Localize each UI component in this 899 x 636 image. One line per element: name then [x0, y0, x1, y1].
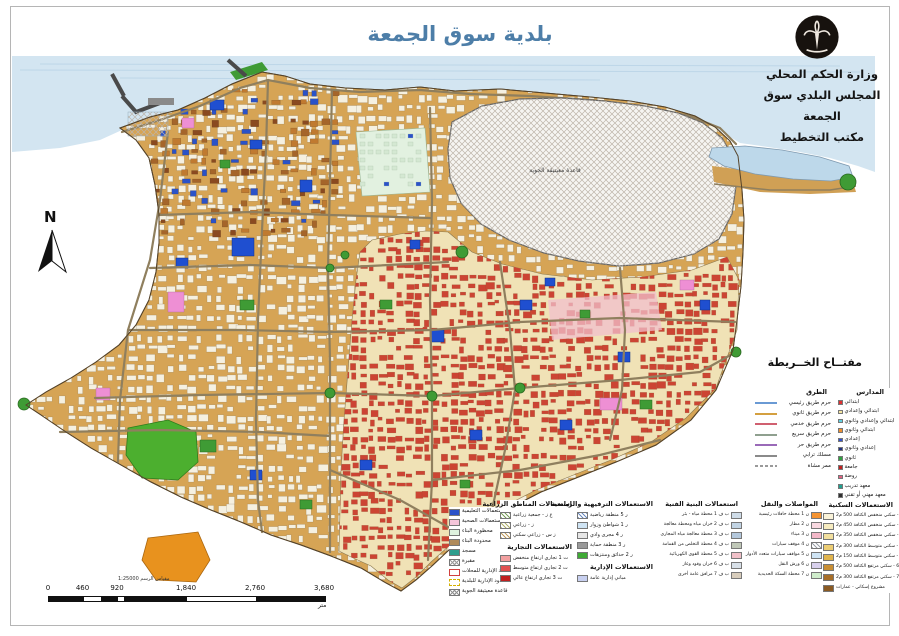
legend-item: حرم طريق حر: [755, 440, 831, 451]
page-title: بلدية سوق الجمعة: [310, 22, 610, 46]
legend-item-label: حرم طريق رئيسي: [779, 401, 831, 407]
legend-swatch: [731, 522, 742, 529]
legend-item: معهد تدريب: [838, 482, 894, 491]
legend-swatch: [823, 554, 834, 561]
legend-swatch: [449, 579, 460, 586]
legend-swatch: [500, 575, 511, 582]
legend-item: ر 2 حدائق ومنتزهات: [577, 550, 657, 560]
scalebar-unit: متر: [318, 602, 326, 609]
legend-item-label: م ر 6 - سكني مرتفع الكثافة 500 م2: [836, 565, 899, 570]
legend-item-label: إعدادي: [845, 437, 860, 442]
legend-item: حرم طريق رئيسي: [755, 398, 831, 409]
scalebar-tick-labels: 04609201,8402,7603,680: [48, 584, 324, 593]
legend-item: إعدادي: [838, 435, 894, 444]
legend-item: ت 3 تجاري ارتفاع عالي: [500, 573, 576, 583]
legend-item: ز - زراعي: [500, 520, 576, 530]
legend-swatch: [838, 410, 843, 415]
legend-item: ب ف 7 مرافق عامة أخرى: [658, 570, 742, 580]
legend-item-label: إعدادي وثانوي: [845, 446, 876, 451]
legend-item-label: ابتدائي وثانوي: [845, 428, 875, 433]
legend-item-label: ب ف 7 مرافق عامة أخرى: [678, 573, 729, 578]
legend-item: م ر 5 - سكني متوسط الكثافة 150 م2: [823, 552, 897, 562]
legend-swatch: [755, 444, 777, 446]
schools-legend-header: المدارس: [838, 388, 894, 396]
roads-legend-items: حرم طريق رئيسيحرم طريق ثانويحرم طريق خدم…: [755, 398, 831, 472]
roads-legend-header: الطرق: [755, 388, 831, 396]
legend-swatch: [823, 574, 834, 581]
legend-swatch: [577, 542, 588, 549]
legend-swatch: [731, 562, 742, 569]
legend-item: حرم طريق خدمي: [755, 419, 831, 430]
legend-column-residential: الاستعمالات السكنية م ر 1 - سكني منخفض ا…: [823, 501, 897, 593]
legend-item-label: م ر 7 - سكني مرتفع الكثافة 300 م2: [836, 576, 899, 581]
legend-item-label: حرم طريق ثانوي: [779, 411, 831, 417]
legend-item: ب ف 3 محطة معالجة مياه المجاري: [658, 530, 742, 540]
legend-item: ب ف 2 خزان مياه ومحطة معالجة: [658, 520, 742, 530]
legend-item-label: محظورة البناء: [462, 529, 493, 534]
residential-items: م ر 1 - سكني منخفض الكثافة 500 م2م ر 2 -…: [823, 511, 897, 593]
residential-header: الاستعمالات السكنية: [823, 501, 897, 509]
legend-item: جامعة: [838, 463, 894, 472]
legend-item-label: ممر مشاة: [779, 464, 831, 470]
legend-item: ن 4 موقف سيارات: [743, 540, 822, 550]
legend-swatch: [500, 555, 511, 562]
legend-swatch: [838, 493, 843, 498]
legend-item: ب ف 1 محطة مياه - بئر: [658, 510, 742, 520]
legend-column-commercial: الاستعمالات التجارية ت 1 تجاري ارتفاع من…: [500, 543, 576, 583]
legend-item-label: ب ف 6 خزان وقود وغاز: [683, 563, 729, 568]
legend-item-label: ر 5 منطقة رياضية: [590, 513, 628, 518]
legend-swatch: [755, 455, 777, 457]
legend-item-label: مسجد: [462, 549, 476, 554]
legend-item-label: ت 3 تجاري ارتفاع عالي: [513, 576, 562, 581]
legend-item-label: ب ف 5 محطة القوى الكهربائية: [669, 553, 729, 558]
legend-item: م ر 7 - سكني مرتفع الكثافة 300 م2: [823, 573, 897, 583]
legend-item-label: م ر 2 - سكني منخفض الكثافة 450 م2: [836, 524, 899, 529]
legend-item-label: ب ف 4 محطة التخلص من القمامة: [662, 543, 729, 548]
legend-item: قاعدة معيتيقة الجوية: [449, 587, 511, 597]
legend-swatch: [838, 400, 843, 405]
legend-swatch: [577, 552, 588, 559]
legend-item: ر 5 منطقة رياضية: [577, 510, 657, 520]
legend-item-label: ن 3 ميناء: [791, 533, 809, 538]
legend-item: ع ز - جمعية زراعية: [500, 510, 576, 520]
legend-swatch: [823, 585, 834, 592]
legend-swatch: [811, 562, 822, 569]
legend-swatch: [577, 512, 588, 519]
legend-item: م ر 2 - سكني منخفض الكثافة 450 م2: [823, 521, 897, 531]
legend-item-label: ر 2 حدائق ومنتزهات: [590, 553, 633, 558]
infrastructure-header: استعمالات البنية الفنية: [658, 500, 742, 508]
legend-swatch: [449, 539, 460, 546]
legend-item: م ر 3 - سكني منخفض الكثافة 350 م2: [823, 532, 897, 542]
legend-item: مسلك ترابي: [755, 451, 831, 462]
legend-item-label: ر 3 منطقة حماية: [590, 543, 625, 548]
legend-item-label: حرم طريق حر: [779, 443, 831, 449]
legend-swatch: [838, 438, 843, 443]
legend-item-label: ر 1 شواطئ وزوار: [590, 523, 628, 528]
legend-item-label: م ر 5 - سكني متوسط الكثافة 150 م2: [836, 555, 899, 560]
legend-swatch: [811, 512, 822, 519]
legend-swatch: [838, 419, 843, 424]
org-line-ministry: وزارة الحكم المحلي: [755, 64, 889, 85]
legend-item: ب ف 6 خزان وقود وغاز: [658, 560, 742, 570]
transport-header: المواصلات والنقل: [743, 500, 822, 508]
legend-item: ثانوي: [838, 454, 894, 463]
legend-swatch: [755, 423, 777, 425]
org-line-council: المجلس البلدي سوق الجمعة: [755, 85, 889, 127]
legend-item-label: م ر 4 - سكني متوسط الكثافة 300 م2: [836, 545, 899, 550]
legend-item-label: ت 2 تجاري ارتفاع متوسط: [513, 566, 568, 571]
legend-item-label: ابتدائي وإعدادي وثانوي: [845, 419, 895, 424]
recreation-header: الاستعمالات الترفيهية والرياضية: [577, 500, 657, 508]
legend-swatch: [838, 465, 843, 470]
legend-item-label: مقبرة: [462, 559, 475, 564]
legend-swatch: [755, 434, 777, 436]
legend-swatch: [838, 456, 843, 461]
legend-swatch: [577, 532, 588, 539]
legend-swatch: [811, 572, 822, 579]
legend-item: ت 2 تجاري ارتفاع متوسط: [500, 563, 576, 573]
legend-item-label: جامعة: [845, 465, 858, 470]
administrative-header: الاستعمالات الإدارية: [577, 563, 657, 571]
legend-column-administrative: الاستعمالات الإدارية مباني إدارية عامة: [577, 563, 657, 583]
scalebar-tick: 1,840: [176, 584, 196, 592]
legend-swatch: [731, 532, 742, 539]
legend-item: م ر 6 - سكني مرتفع الكثافة 500 م2: [823, 562, 897, 572]
legend-item-label: م ر 1 - سكني منخفض الكثافة 500 م2: [836, 514, 899, 519]
legend-swatch: [838, 484, 843, 489]
legend-swatch: [500, 532, 511, 539]
legend-item: ن 5 مواقف سيارات متعدد الأدوار: [743, 550, 822, 560]
legend-item-label: ثانوي: [845, 456, 856, 461]
commercial-items: ت 1 تجاري ارتفاع منخفضت 2 تجاري ارتفاع م…: [500, 553, 576, 583]
legend-item: ن 1 محطة حافلات رئيسية: [743, 510, 822, 520]
schools-legend-items: ابتدائيابتدائي وإعداديابتدائي وإعدادي وث…: [838, 398, 894, 510]
legend-item: ز س - زراعي سكني: [500, 530, 576, 540]
legend-item: م ر 1 - سكني منخفض الكثافة 500 م2: [823, 511, 897, 521]
legend-swatch: [449, 559, 460, 566]
legend-item-label: م ر 3 - سكني منخفض الكثافة 350 م2: [836, 534, 899, 539]
legend-item: ن 3 ميناء: [743, 530, 822, 540]
scalebar: مقياس الرسم 1:25000 04609201,8402,7603,6…: [48, 576, 338, 618]
legend-item: ابتدائي وثانوي: [838, 426, 894, 435]
scalebar-tick: 2,760: [245, 584, 265, 592]
legend-item: ن 7 محطة السكة الحديدية: [743, 570, 822, 580]
legend-swatch: [731, 512, 742, 519]
legend-swatch: [577, 522, 588, 529]
legend-item-label: ابتدائي وإعدادي: [845, 409, 879, 414]
legend-item: ب ف 4 محطة التخلص من القمامة: [658, 540, 742, 550]
legend-item: ر 1 شواطئ وزوار: [577, 520, 657, 530]
commercial-header: الاستعمالات التجارية: [500, 543, 576, 551]
legend-swatch: [449, 569, 460, 576]
legend-item: ممر مشاة: [755, 461, 831, 472]
legend-swatch: [449, 519, 460, 526]
legend-swatch: [838, 475, 843, 480]
schools-legend: المدارس ابتدائيابتدائي وإعداديابتدائي وإ…: [838, 388, 894, 510]
legend-item-label: ن 1 محطة حافلات رئيسية: [759, 513, 809, 518]
legend-swatch: [731, 572, 742, 579]
legend-swatch: [838, 428, 843, 433]
legend-item-label: معهد مهني أو تقني: [845, 493, 886, 498]
legend-swatch: [500, 522, 511, 529]
legend-swatch: [500, 512, 511, 519]
legend-item: مباني إدارية عامة: [577, 573, 657, 583]
legend-item-label: مشروع إسكاني - عمارات: [836, 586, 885, 591]
legend-column-transport: المواصلات والنقل ن 1 محطة حافلات رئيسيةن…: [743, 500, 822, 580]
legend-item-label: ن 6 ورش النقل: [778, 563, 809, 568]
legend-swatch: [731, 542, 742, 549]
roads-legend: الطرق حرم طريق رئيسيحرم طريق ثانويحرم طر…: [755, 388, 831, 472]
legend-item-label: ت 1 تجاري ارتفاع منخفض: [513, 556, 568, 561]
legend-swatch: [449, 509, 460, 516]
legend-item-label: معهد تدريب: [845, 484, 871, 489]
legend-item: حرم طريق ثانوي: [755, 409, 831, 420]
legend-item-label: ز س - زراعي سكني: [513, 533, 556, 538]
legend-swatch: [811, 532, 822, 539]
legend-item: ب ف 5 محطة القوى الكهربائية: [658, 550, 742, 560]
legend-swatch: [449, 549, 460, 556]
scalebar-tick: 0: [46, 584, 50, 592]
legend-column-recreation: الاستعمالات الترفيهية والرياضية ر 5 منطق…: [577, 500, 657, 560]
legend-item: ن 2 مطار: [743, 520, 822, 530]
legend-item-label: حرم طريق خدمي: [779, 422, 831, 428]
legend-swatch: [823, 564, 834, 571]
legend-swatch: [577, 575, 588, 582]
legend-item-label: ب ف 2 خزان مياه ومحطة معالجة: [664, 523, 729, 528]
legend-swatch: [811, 542, 822, 549]
legend-item-label: ب ف 3 محطة معالجة مياه المجاري: [660, 533, 729, 538]
administrative-items: مباني إدارية عامة: [577, 573, 657, 583]
infrastructure-items: ب ف 1 محطة مياه - بئرب ف 2 خزان مياه ومح…: [658, 510, 742, 580]
transport-items: ن 1 محطة حافلات رئيسيةن 2 مطارن 3 ميناءن…: [743, 510, 822, 580]
legend-column-infrastructure: استعمالات البنية الفنية ب ف 1 محطة مياه …: [658, 500, 742, 580]
legend-swatch: [811, 522, 822, 529]
legend-item-label: ر 4 مجرى وادي: [590, 533, 623, 538]
legend-item: روضة: [838, 472, 894, 481]
legend-swatch: [838, 447, 843, 452]
legend-item-label: ن 4 موقف سيارات: [772, 543, 809, 548]
legend-item-label: قاعدة معيتيقة الجوية: [462, 589, 508, 594]
legend-item-label: الاستعمالات الصحية: [462, 519, 505, 524]
legend-item-label: محدودة البناء: [462, 539, 491, 544]
legend-swatch: [755, 402, 777, 404]
legend-item-label: ابتدائي: [845, 400, 860, 405]
legend-swatch: [823, 544, 834, 551]
legend-item: ن 6 ورش النقل: [743, 560, 822, 570]
legend-item-label: مباني إدارية عامة: [590, 576, 626, 581]
legend-item: ر 4 مجرى وادي: [577, 530, 657, 540]
recreation-items: ر 5 منطقة رياضيةر 1 شواطئ وزوارر 4 مجرى …: [577, 510, 657, 560]
legend-item: ت 1 تجاري ارتفاع منخفض: [500, 553, 576, 563]
legend-swatch: [500, 565, 511, 572]
legend-item-label: ن 5 مواقف سيارات متعدد الأدوار: [746, 553, 809, 558]
legend-item: ابتدائي: [838, 398, 894, 407]
map-sheet: قاعدة معيتيقة الجوية بلدية سوق الجمعة وز…: [0, 0, 899, 636]
legend-item: مشروع إسكاني - عمارات: [823, 583, 897, 593]
legend-item: ابتدائي وإعدادي وثانوي: [838, 417, 894, 426]
scalebar-tick: 460: [76, 584, 89, 592]
legend-item-label: ب ف 1 محطة مياه - بئر: [682, 513, 729, 518]
org-line-office: مكتب التخطيط: [755, 127, 889, 148]
legend-swatch: [731, 552, 742, 559]
org-text: وزارة الحكم المحلي المجلس البلدي سوق الج…: [755, 64, 889, 148]
scalebar-bar: [48, 596, 326, 602]
legend-item: م ر 4 - سكني متوسط الكثافة 300 م2: [823, 542, 897, 552]
scalebar-tick: 3,680: [314, 584, 334, 592]
legend-swatch: [449, 529, 460, 536]
municipality-logo-icon: [793, 13, 841, 61]
scalebar-caption: مقياس الرسم 1:25000: [118, 576, 170, 582]
north-arrow-label: N: [44, 208, 57, 226]
legend-item-label: ن 7 محطة السكة الحديدية: [758, 573, 809, 578]
legend-item: معهد مهني أو تقني: [838, 491, 894, 500]
agriculture-items: ع ز - جمعية زراعيةز - زراعيز س - زراعي س…: [500, 510, 576, 540]
legend-swatch: [449, 589, 460, 596]
legend-item-label: ن 2 مطار: [790, 523, 809, 528]
legend-item: إعدادي وثانوي: [838, 444, 894, 453]
legend-item-label: حرم طريق سريع: [779, 432, 831, 438]
legend-item-label: ع ز - جمعية زراعية: [513, 513, 553, 518]
scalebar-tick: 920: [110, 584, 123, 592]
legend-swatch: [823, 513, 834, 520]
legend-swatch: [755, 465, 777, 467]
legend-item: حرم طريق سريع: [755, 430, 831, 441]
legend-swatch: [823, 533, 834, 540]
legend-item-label: ز - زراعي: [513, 523, 534, 528]
legend-item-label: روضة: [845, 474, 857, 479]
legend-swatch: [811, 552, 822, 559]
legend-item: ابتدائي وإعدادي: [838, 407, 894, 416]
legend-swatch: [823, 523, 834, 530]
legend-key-title: مفتــاح الخــريطة: [765, 356, 865, 369]
legend-item: ر 3 منطقة حماية: [577, 540, 657, 550]
legend-item-label: مسلك ترابي: [779, 453, 831, 459]
legend-swatch: [755, 413, 777, 415]
